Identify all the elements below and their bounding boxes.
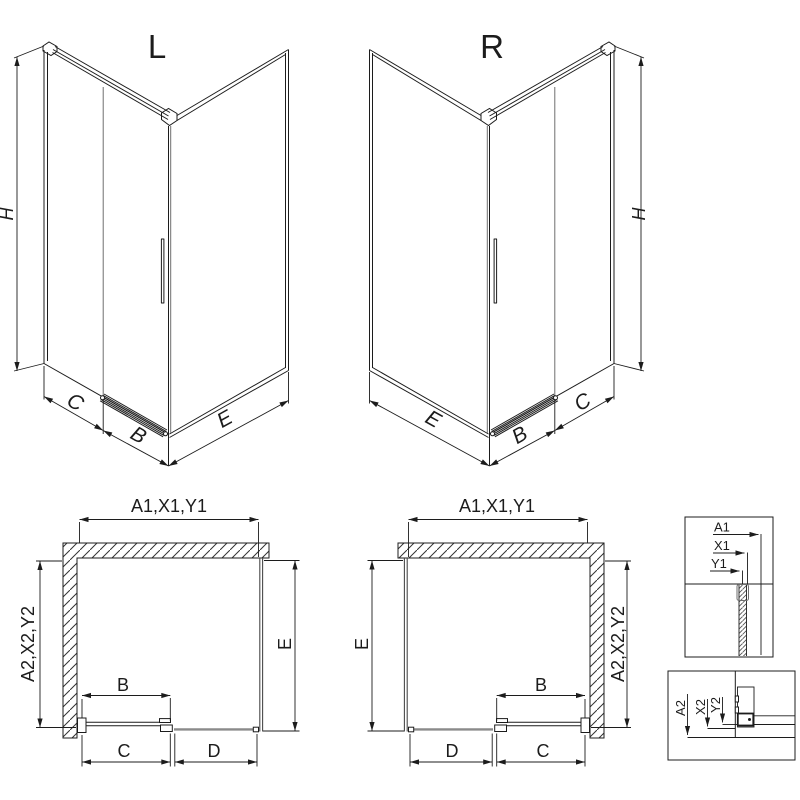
detail-top-label-a1: A1 <box>714 520 730 535</box>
detail-bottom-label-a2: A2 <box>673 700 688 716</box>
detail-bottom-label-y2: Y2 <box>708 697 723 713</box>
plan-right-fixed-label: C <box>537 741 550 761</box>
iso-left-height-label: H <box>0 207 17 221</box>
detail-bottom-label-x2: X2 <box>693 699 708 715</box>
iso-left-title: L <box>148 28 166 65</box>
detail-wall-profile: A1 X1 Y1 <box>685 517 773 657</box>
plan-right-width-label: A1,X1,Y1 <box>459 496 535 516</box>
plan-left-depth-right-label: E <box>275 638 295 650</box>
iso-right-fixed-label: C <box>570 388 595 416</box>
wall-hatch <box>63 543 269 738</box>
plan-left-fixed-label: C <box>118 741 131 761</box>
plan-view-right <box>368 520 632 767</box>
sliding-door-plan <box>78 718 259 733</box>
detail-door-profile: A2 X2 Y2 <box>668 671 795 760</box>
door-handle <box>161 239 164 303</box>
plan-left-door-label: B <box>117 675 129 695</box>
plan-left-width-label: A1,X1,Y1 <box>131 496 207 516</box>
technical-drawing-page: A1 X1 Y1 A2 X2 Y2 L H C B E R H C B E A1… <box>0 0 800 800</box>
iso-left-fixed-label: C <box>63 389 88 417</box>
plan-right-depth-left-label: E <box>352 638 372 650</box>
detail-top-label-y1: Y1 <box>711 556 727 571</box>
detail-top-label-x1: X1 <box>714 538 730 553</box>
iso-view-left <box>14 42 289 466</box>
plan-left-inline-label: D <box>208 741 221 761</box>
shower-enclosure-drawing: A1 X1 Y1 A2 X2 Y2 L H C B E R H C B E A1… <box>0 0 800 800</box>
iso-view-right <box>370 42 645 466</box>
iso-left-side-label: E <box>213 405 237 432</box>
iso-right-title: R <box>480 28 504 65</box>
plan-right-inline-label: D <box>446 741 459 761</box>
plan-right-door-label: B <box>535 675 547 695</box>
plan-right-depth-right-label: A2,X2,Y2 <box>608 606 628 682</box>
plan-view-left <box>36 520 300 767</box>
iso-right-side-label: E <box>421 406 445 433</box>
plan-left-depth-left-label: A2,X2,Y2 <box>18 606 38 682</box>
iso-right-height-label: H <box>629 207 649 221</box>
